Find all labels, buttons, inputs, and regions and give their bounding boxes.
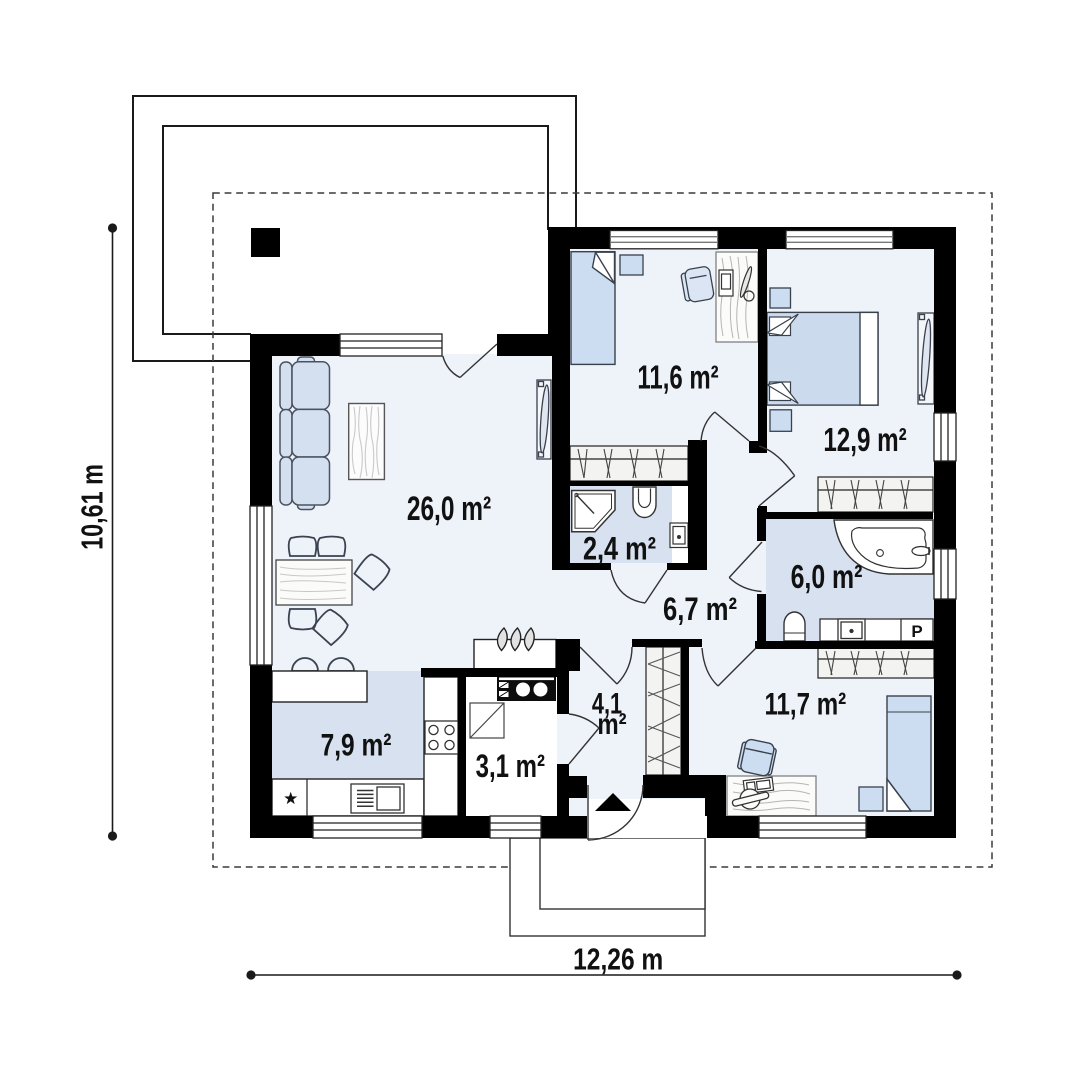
svg-text:3,1 m²: 3,1 m² xyxy=(476,749,545,785)
svg-text:2,4 m²: 2,4 m² xyxy=(583,532,656,568)
svg-text:12,26 m: 12,26 m xyxy=(573,942,663,976)
svg-text:m²: m² xyxy=(597,706,626,740)
svg-text:11,6 m²: 11,6 m² xyxy=(637,360,718,397)
svg-text:6,0 m²: 6,0 m² xyxy=(791,560,863,596)
svg-text:7,9 m²: 7,9 m² xyxy=(321,728,392,763)
svg-text:12,9 m²: 12,9 m² xyxy=(823,422,907,458)
svg-text:6,7 m²: 6,7 m² xyxy=(663,592,737,627)
svg-text:26,0 m²: 26,0 m² xyxy=(407,490,491,528)
svg-text:11,7 m²: 11,7 m² xyxy=(764,686,846,721)
svg-text:P: P xyxy=(911,622,922,641)
svg-text:10,61 m: 10,61 m xyxy=(74,464,109,550)
